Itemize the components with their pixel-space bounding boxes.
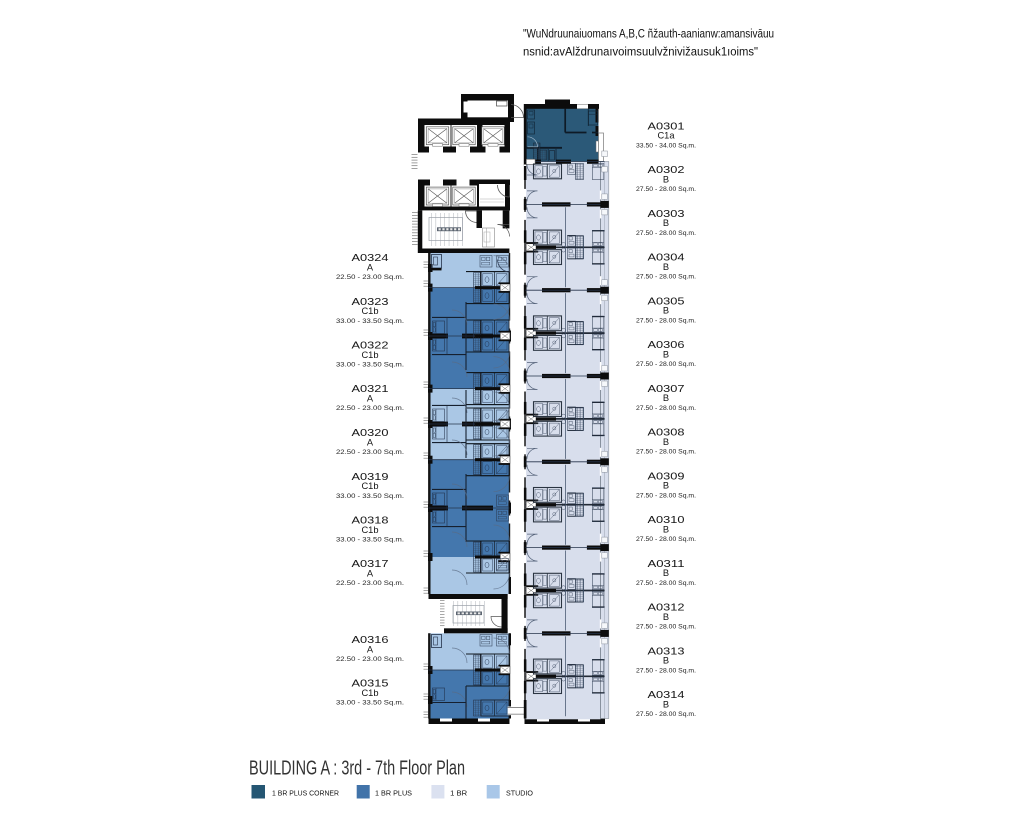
svg-text:B: B xyxy=(663,524,669,534)
svg-text:27.50 - 28.00 Sq.m.: 27.50 - 28.00 Sq.m. xyxy=(636,711,696,718)
svg-text:1 BR PLUS CORNER: 1 BR PLUS CORNER xyxy=(272,789,339,798)
svg-text:22.50 - 23.00 Sq.m.: 22.50 - 23.00 Sq.m. xyxy=(336,405,404,412)
svg-text:"WuNdruunaiuomans A,B,C ñžauth: "WuNdruunaiuomans A,B,C ñžauth-aanianw:a… xyxy=(523,27,774,41)
svg-text:27.50 - 28.00 Sq.m.: 27.50 - 28.00 Sq.m. xyxy=(636,624,696,631)
svg-text:27.50 - 28.00 Sq.m.: 27.50 - 28.00 Sq.m. xyxy=(636,536,696,543)
svg-text:C1b: C1b xyxy=(361,525,378,535)
svg-text:27.50 - 28.00 Sq.m.: 27.50 - 28.00 Sq.m. xyxy=(636,317,696,324)
svg-text:33.00 - 33.50 Sq.m.: 33.00 - 33.50 Sq.m. xyxy=(336,700,404,707)
svg-text:22.50 - 23.00 Sq.m.: 22.50 - 23.00 Sq.m. xyxy=(336,580,404,587)
svg-text:B: B xyxy=(663,612,669,622)
svg-text:B: B xyxy=(663,699,669,709)
svg-text:A: A xyxy=(367,644,374,654)
svg-text:22.50 - 23.00 Sq.m.: 22.50 - 23.00 Sq.m. xyxy=(336,274,404,281)
svg-text:A: A xyxy=(367,262,374,272)
svg-text:33.00 - 33.50 Sq.m.: 33.00 - 33.50 Sq.m. xyxy=(336,318,404,325)
svg-text:B: B xyxy=(663,656,669,666)
svg-text:A: A xyxy=(367,569,374,579)
svg-text:B: B xyxy=(663,262,669,272)
svg-text:C1b: C1b xyxy=(361,688,378,698)
svg-text:B: B xyxy=(663,349,669,359)
svg-text:B: B xyxy=(663,481,669,491)
svg-text:C1a: C1a xyxy=(657,131,675,141)
svg-text:27.50 - 28.00 Sq.m.: 27.50 - 28.00 Sq.m. xyxy=(636,580,696,587)
svg-text:BUILDING A : 3rd - 7th Floor P: BUILDING A : 3rd - 7th Floor Plan xyxy=(249,758,465,780)
svg-text:27.50 - 28.00 Sq.m.: 27.50 - 28.00 Sq.m. xyxy=(636,186,696,193)
svg-text:nsnid:avAlždrunaıvoimsuulvžniv: nsnid:avAlždrunaıvoimsuulvžnivižausuk1ıo… xyxy=(523,45,758,59)
svg-text:C1b: C1b xyxy=(361,350,378,360)
svg-text:33.00 - 33.50 Sq.m.: 33.00 - 33.50 Sq.m. xyxy=(336,362,404,369)
svg-text:27.50 - 28.00 Sq.m.: 27.50 - 28.00 Sq.m. xyxy=(636,361,696,368)
svg-text:B: B xyxy=(663,306,669,316)
svg-text:27.50 - 28.00 Sq.m.: 27.50 - 28.00 Sq.m. xyxy=(636,449,696,456)
svg-text:27.50 - 28.00 Sq.m.: 27.50 - 28.00 Sq.m. xyxy=(636,274,696,281)
svg-text:27.50 - 28.00 Sq.m.: 27.50 - 28.00 Sq.m. xyxy=(636,667,696,674)
svg-text:27.50 - 28.00 Sq.m.: 27.50 - 28.00 Sq.m. xyxy=(636,492,696,499)
svg-text:C1b: C1b xyxy=(361,481,378,491)
svg-text:33.50 - 34.00 Sq.m.: 33.50 - 34.00 Sq.m. xyxy=(636,142,696,149)
svg-text:B: B xyxy=(663,568,669,578)
svg-text:1 BR PLUS: 1 BR PLUS xyxy=(375,789,412,798)
svg-text:27.50 - 28.00 Sq.m.: 27.50 - 28.00 Sq.m. xyxy=(636,230,696,237)
svg-text:33.00 - 33.50 Sq.m.: 33.00 - 33.50 Sq.m. xyxy=(336,537,404,544)
svg-text:B: B xyxy=(663,393,669,403)
svg-text:B: B xyxy=(663,175,669,185)
svg-text:33.00 - 33.50 Sq.m.: 33.00 - 33.50 Sq.m. xyxy=(336,493,404,500)
svg-text:A: A xyxy=(367,394,374,404)
svg-text:STUDIO: STUDIO xyxy=(506,789,533,798)
svg-text:1 BR: 1 BR xyxy=(450,789,468,798)
svg-text:C1b: C1b xyxy=(361,306,378,316)
svg-text:22.50 - 23.00 Sq.m.: 22.50 - 23.00 Sq.m. xyxy=(336,656,404,663)
svg-text:B: B xyxy=(663,218,669,228)
svg-text:B: B xyxy=(663,437,669,447)
svg-text:22.50 - 23.00 Sq.m.: 22.50 - 23.00 Sq.m. xyxy=(336,449,404,456)
svg-text:A: A xyxy=(367,437,374,447)
svg-text:27.50 - 28.00 Sq.m.: 27.50 - 28.00 Sq.m. xyxy=(636,405,696,412)
